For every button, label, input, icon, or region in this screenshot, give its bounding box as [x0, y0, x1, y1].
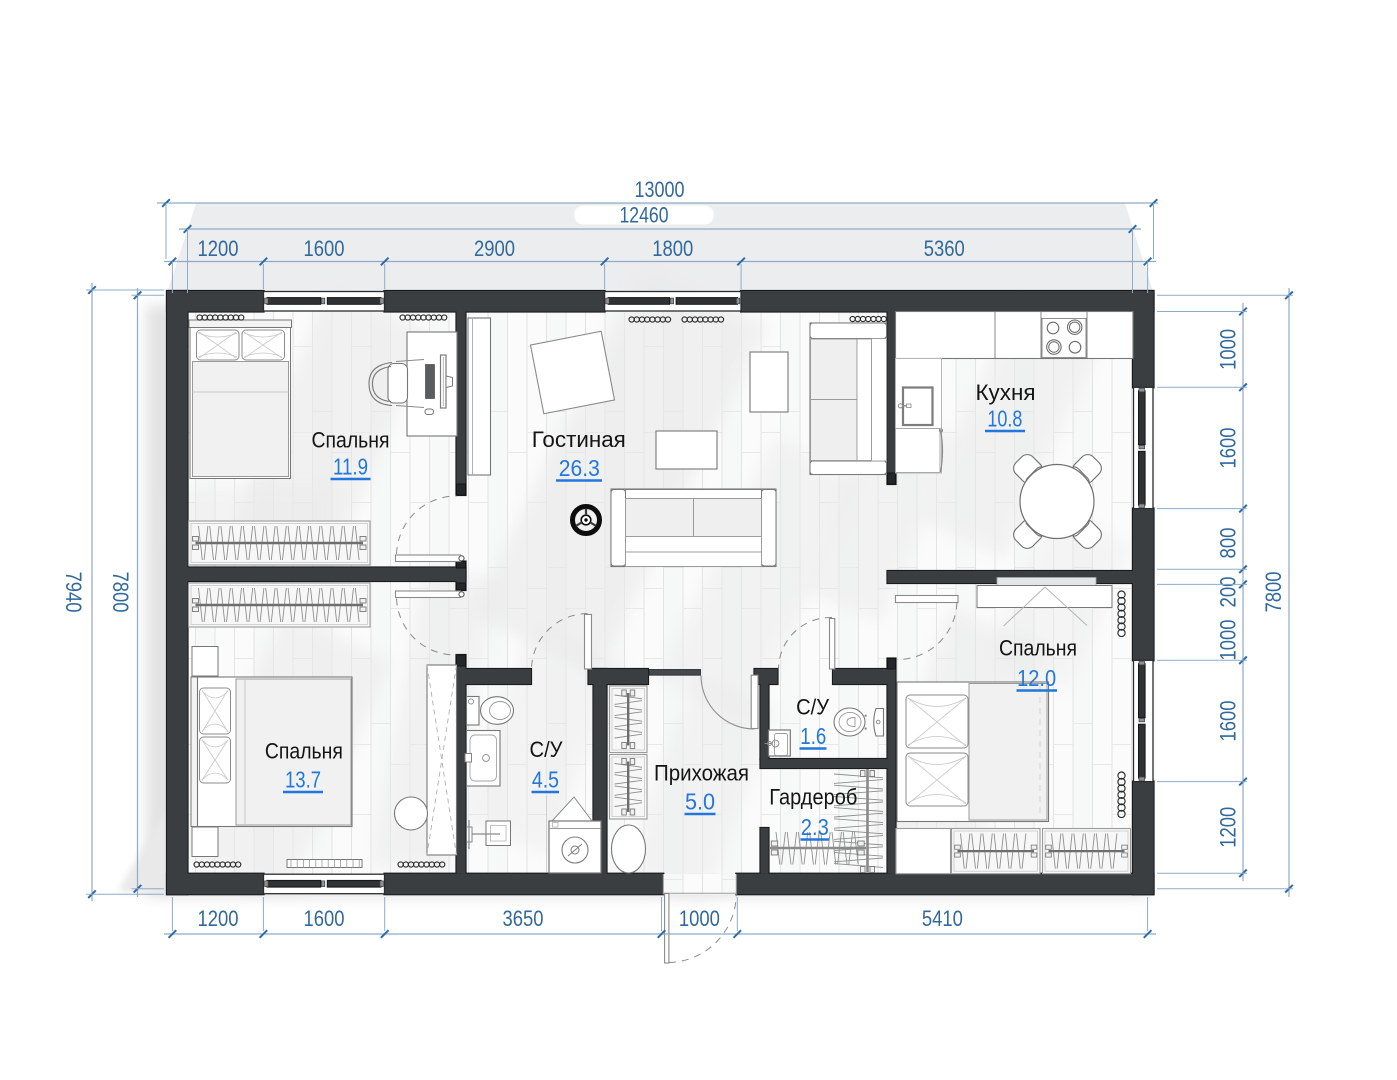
- svg-text:Спальня: Спальня: [999, 636, 1077, 661]
- svg-text:26.3: 26.3: [559, 455, 600, 481]
- svg-text:Гостиная: Гостиная: [532, 427, 626, 452]
- svg-text:С/У: С/У: [530, 737, 564, 762]
- svg-text:12460: 12460: [620, 203, 669, 228]
- svg-text:11.9: 11.9: [333, 454, 368, 480]
- svg-text:1600: 1600: [1216, 428, 1241, 469]
- svg-text:5360: 5360: [924, 236, 965, 261]
- svg-text:Гардероб: Гардероб: [769, 785, 857, 810]
- svg-text:С/У: С/У: [796, 695, 830, 720]
- svg-text:1000: 1000: [1216, 620, 1241, 661]
- svg-text:7800: 7800: [1261, 572, 1286, 613]
- svg-text:1800: 1800: [652, 236, 693, 261]
- svg-text:2.3: 2.3: [801, 814, 829, 840]
- svg-text:4.5: 4.5: [532, 767, 559, 793]
- svg-text:1000: 1000: [1216, 329, 1241, 370]
- svg-text:5.0: 5.0: [685, 789, 715, 815]
- svg-text:1.6: 1.6: [800, 723, 826, 749]
- svg-text:1000: 1000: [679, 906, 720, 931]
- svg-text:Спальня: Спальня: [312, 428, 390, 453]
- svg-text:13.7: 13.7: [285, 767, 321, 793]
- svg-text:1600: 1600: [1216, 701, 1241, 742]
- svg-text:2900: 2900: [474, 236, 515, 261]
- svg-text:Спальня: Спальня: [265, 739, 343, 764]
- svg-text:1200: 1200: [198, 236, 239, 261]
- svg-text:10.8: 10.8: [987, 406, 1022, 432]
- svg-text:3650: 3650: [503, 906, 544, 931]
- svg-text:1600: 1600: [304, 906, 345, 931]
- svg-text:Прихожая: Прихожая: [654, 761, 749, 786]
- svg-text:1600: 1600: [304, 236, 345, 261]
- svg-text:800: 800: [1216, 528, 1241, 559]
- svg-text:200: 200: [1216, 577, 1241, 608]
- svg-text:Кухня: Кухня: [976, 380, 1036, 405]
- svg-text:7940: 7940: [61, 572, 86, 613]
- svg-text:1200: 1200: [198, 906, 239, 931]
- svg-text:13000: 13000: [635, 177, 685, 202]
- svg-text:7800: 7800: [108, 572, 133, 613]
- svg-text:5410: 5410: [922, 906, 963, 931]
- svg-text:12.0: 12.0: [1017, 665, 1056, 691]
- svg-text:1200: 1200: [1216, 807, 1241, 848]
